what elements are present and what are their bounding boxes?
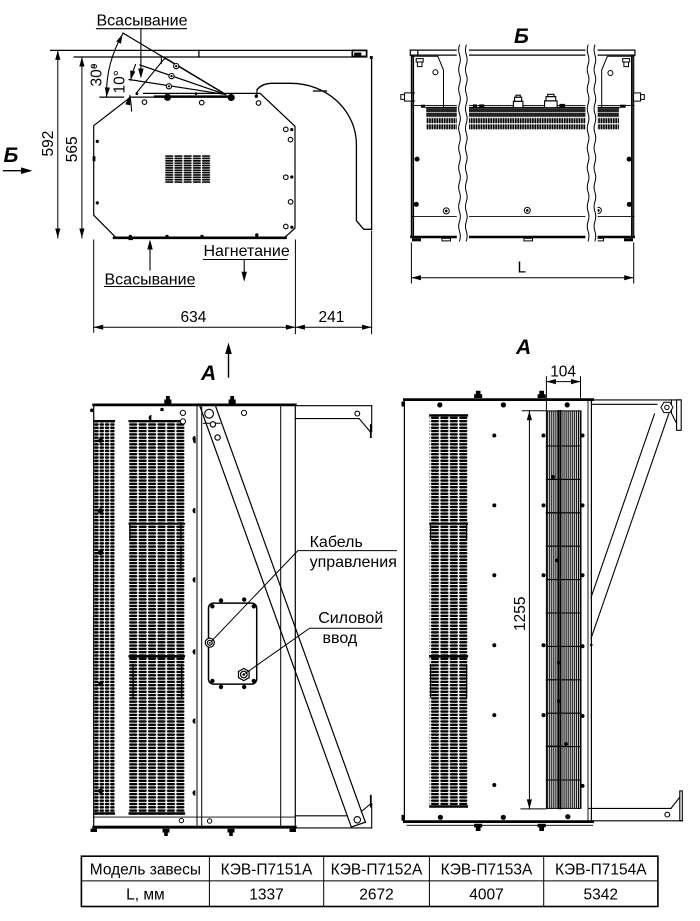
svg-text:Б: Б: [4, 144, 19, 167]
svg-text:А: А: [200, 362, 216, 385]
svg-text:104: 104: [550, 364, 576, 381]
svg-text:КЭВ-П7154А: КЭВ-П7154А: [555, 861, 647, 878]
svg-text:ввод: ввод: [323, 630, 358, 647]
svg-text:А: А: [515, 336, 531, 359]
svg-text:1337: 1337: [249, 887, 283, 904]
svg-text:КЭВ-П7153А: КЭВ-П7153А: [441, 861, 533, 878]
svg-text:Силовой: Силовой: [318, 610, 383, 627]
svg-text:30°: 30°: [89, 63, 106, 86]
svg-text:592: 592: [40, 131, 57, 157]
svg-text:5342: 5342: [584, 887, 618, 904]
svg-text:управления: управления: [310, 554, 397, 571]
svg-text:Б: Б: [514, 25, 529, 48]
svg-text:Кабель: Кабель: [310, 534, 363, 551]
svg-text:L: L: [518, 260, 527, 277]
svg-text:Всасывание: Всасывание: [97, 13, 188, 30]
svg-text:565: 565: [64, 136, 81, 162]
svg-text:241: 241: [319, 309, 345, 326]
svg-text:4007: 4007: [469, 887, 503, 904]
svg-text:КЭВ-П7151А: КЭВ-П7151А: [221, 861, 313, 878]
svg-text:Модель завесы: Модель завесы: [90, 861, 201, 878]
svg-text:2672: 2672: [359, 887, 393, 904]
svg-text:L, мм: L, мм: [126, 887, 165, 904]
svg-text:634: 634: [181, 309, 207, 326]
svg-text:Нагнетание: Нагнетание: [204, 243, 290, 260]
svg-text:КЭВ-П7152А: КЭВ-П7152А: [331, 861, 423, 878]
svg-text:1255: 1255: [512, 597, 529, 631]
svg-text:10°: 10°: [112, 70, 129, 93]
